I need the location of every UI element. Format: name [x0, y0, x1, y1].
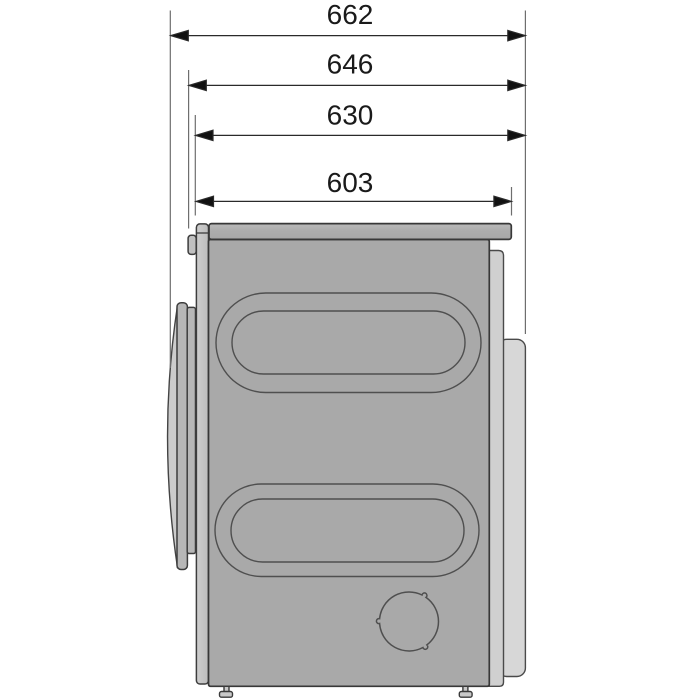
- svg-text:662: 662: [327, 0, 374, 30]
- svg-text:630: 630: [327, 99, 374, 130]
- svg-text:646: 646: [327, 48, 374, 79]
- svg-text:603: 603: [327, 167, 374, 198]
